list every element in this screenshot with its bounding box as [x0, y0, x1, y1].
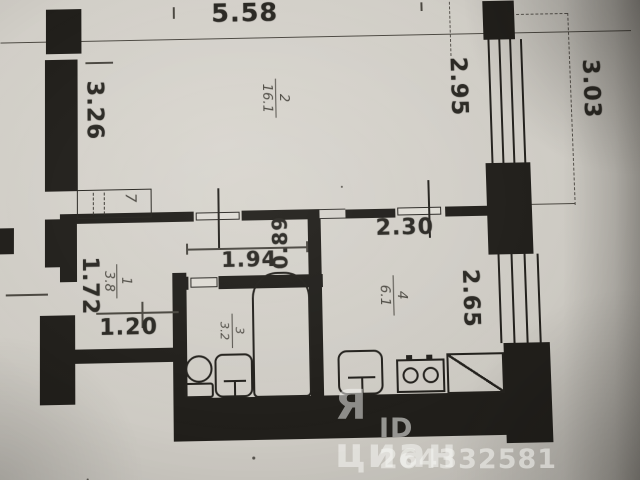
washbasin-pedestal	[184, 382, 213, 398]
dim-tick-194-l	[186, 244, 188, 255]
cian-pin-logo: Я	[335, 381, 369, 429]
wall-right-top	[482, 1, 515, 40]
dim-corridor-depth: 0.89	[268, 216, 293, 270]
wall-left-lower	[40, 315, 75, 405]
watermark-id: ID 264332581	[379, 413, 557, 475]
window-living	[487, 39, 526, 163]
paper-speck	[341, 186, 343, 188]
floorplan-photo: 7 5.58 3.26 2.95 3.03 2.30 2.65 1.94 0.8…	[0, 0, 640, 480]
room-living-area: 16.1	[260, 79, 275, 118]
stove-knob-2	[426, 355, 432, 359]
door-kitchen-opening	[319, 209, 345, 219]
dim-living-left: 3.26	[82, 80, 108, 140]
room-bathroom-number: 3	[233, 313, 246, 348]
wall-inner-main-4	[445, 206, 487, 217]
door-bath-threshold	[190, 277, 217, 288]
dim-ext-303-v	[567, 13, 575, 205]
closet-dash-1	[93, 193, 94, 215]
dim-ext-326	[85, 62, 113, 64]
dim-right-overall: 3.03	[577, 59, 605, 119]
dim-kitchen-width: 2.30	[375, 215, 434, 241]
room-hallway-number: 1	[119, 264, 133, 298]
wall-right-mid	[486, 162, 534, 254]
room-label-kitchen: 4 6.1	[377, 275, 409, 316]
dim-ext-303-top	[516, 13, 567, 15]
dim-kitchen-depth: 2.65	[457, 269, 484, 328]
room-living-number: 2	[277, 78, 292, 117]
wall-bath-top-a	[172, 277, 188, 290]
bathtub	[251, 271, 312, 398]
dim-ext-balcony	[449, 2, 452, 56]
dim-tick-558-l	[173, 7, 175, 19]
dim-line-172	[6, 294, 48, 296]
room-kitchen-number: 4	[394, 275, 409, 316]
wall-left-checker	[60, 267, 77, 282]
room-hallway-area: 3.8	[102, 264, 116, 298]
paper-speck	[252, 456, 255, 459]
wall-hall-bottom	[74, 348, 179, 364]
dim-line-120	[96, 311, 178, 314]
dim-hall-width: 1.20	[99, 315, 158, 341]
room-kitchen-area: 6.1	[377, 275, 392, 316]
room-bathroom-area: 3.2	[218, 314, 231, 349]
stove-knob-1	[406, 355, 412, 359]
room-label-bathroom: 3 3.2	[218, 313, 246, 348]
room-label-hallway: 1 3.8	[102, 264, 133, 299]
toilet-mark-stem	[234, 382, 236, 396]
wall-left-upper	[45, 60, 78, 192]
dim-top-overall: 5.58	[211, 0, 278, 29]
wall-left-top	[46, 9, 82, 54]
dim-tick-194-r	[306, 241, 308, 252]
window-kitchen	[498, 254, 542, 343]
dim-tick-558-r	[420, 2, 422, 11]
dim-entry-side: 1.72	[77, 256, 102, 315]
dim-ext-303-bot	[532, 203, 575, 205]
floorplan-drawing: 7 5.58 3.26 2.95 3.03 2.30 2.65 1.94 0.8…	[0, 0, 640, 480]
dim-living-window: 2.95	[445, 57, 473, 117]
room-label-living: 2 16.1	[260, 78, 292, 118]
toilet	[214, 353, 253, 398]
room-label-closet-number: 7	[122, 193, 140, 203]
wall-entry-stub	[0, 228, 14, 254]
washbasin-bowl	[185, 355, 213, 383]
wall-left-mid	[45, 219, 77, 268]
door-leaf-living	[217, 188, 220, 250]
closet-dash-2	[104, 193, 105, 215]
slab-line	[1, 30, 631, 44]
closet: 7	[77, 189, 152, 219]
